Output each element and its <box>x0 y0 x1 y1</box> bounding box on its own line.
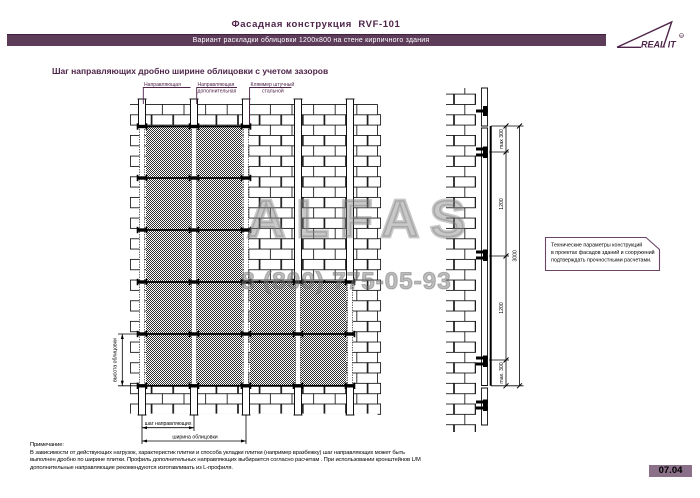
svg-text:1200: 1200 <box>499 302 505 314</box>
svg-text:1200: 1200 <box>499 198 505 210</box>
svg-text:max 300: max 300 <box>499 129 505 149</box>
svg-text:3000: 3000 <box>513 250 519 262</box>
svg-text:стальной: стальной <box>262 88 284 95</box>
svg-text:в проектах фасадов зданий и со: в проектах фасадов зданий и сооружений <box>551 249 655 256</box>
svg-text:шаг направляющих: шаг направляющих <box>145 421 192 427</box>
svg-text:подтверждать прочностными расч: подтверждать прочностными расчетами. <box>551 258 652 264</box>
svg-text:дополнительная: дополнительная <box>198 89 237 95</box>
svg-text:Кляммер штучный: Кляммер штучный <box>251 81 295 88</box>
svg-text:max. 300: max. 300 <box>499 362 505 383</box>
svg-text:высота облицовки: высота облицовки <box>113 338 119 382</box>
svg-text:ширина облицовки: ширина облицовки <box>172 435 217 441</box>
svg-text:Технические параметры конструк: Технические параметры конструкций <box>551 242 642 249</box>
